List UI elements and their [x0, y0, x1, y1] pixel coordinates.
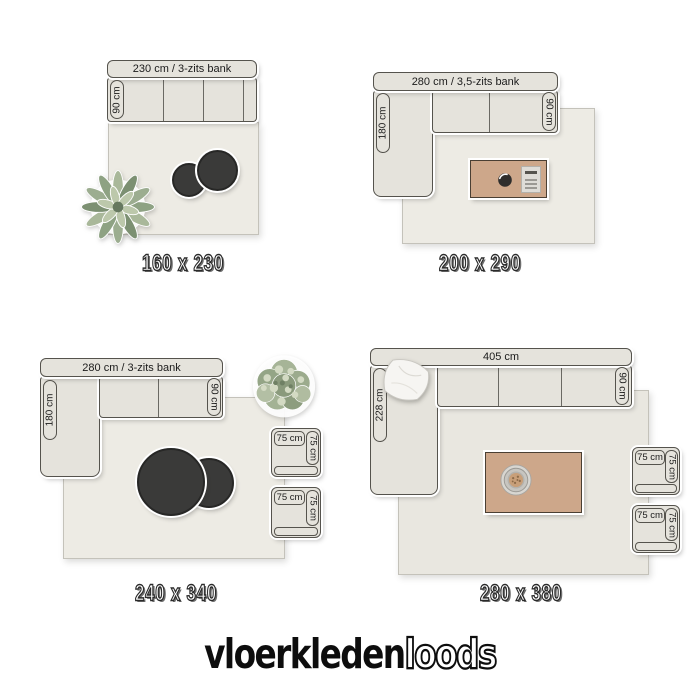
seat-divider: [203, 78, 204, 121]
magazine-line: [525, 187, 537, 189]
armchair-depth-pill: 75 cm: [306, 431, 319, 465]
sofa-depth-label: 90 cm: [112, 86, 123, 113]
armchair: 75 cm 75 cm: [632, 447, 680, 495]
armchair-depth-label: 75 cm: [666, 512, 677, 538]
sofa-width-label: 405 cm: [483, 351, 519, 363]
armchair: 75 cm 75 cm: [271, 428, 321, 477]
armchair-width-bar: 75 cm: [635, 450, 665, 465]
sofa-backrest-label: 280 cm / 3-zits bank: [40, 358, 223, 377]
armchair-width-bar: 75 cm: [635, 508, 665, 523]
round-coffee-table-icon: [137, 448, 205, 516]
rug-size-caption: 240 x 340: [112, 581, 240, 607]
seat-divider: [243, 78, 244, 121]
armchair: 75 cm 75 cm: [271, 487, 321, 538]
magazine-line: [525, 179, 537, 181]
armchair-width-label: 75 cm: [277, 492, 303, 503]
round-coffee-table-icon: [197, 150, 238, 191]
armchair-depth-pill: 75 cm: [306, 490, 319, 526]
magazine-icon: [521, 166, 541, 193]
magazine-line: [525, 183, 537, 185]
plate-icon: [500, 464, 532, 496]
armchair-width-label: 75 cm: [637, 452, 663, 463]
sofa-backrest-label: 230 cm / 3-zits bank: [107, 60, 257, 78]
armchair-width-bar: 75 cm: [274, 490, 305, 505]
sofa-depth-label: 90 cm: [544, 98, 555, 125]
brand-logo-outline: loods: [405, 630, 496, 678]
wooden-coffee-table-icon: [485, 452, 582, 513]
armchair-depth-label: 75 cm: [307, 495, 318, 521]
seat-divider: [498, 366, 499, 406]
seat-divider: [158, 377, 159, 417]
chaise-depth-label: 180 cm: [378, 107, 389, 140]
armchair-width-label: 75 cm: [637, 510, 663, 521]
chaise-depth-pill: 180 cm: [43, 380, 57, 440]
rug-size-guide: 230 cm / 3-zits bank 90 cm: [0, 0, 700, 700]
rug-size-caption: 160 x 230: [119, 251, 247, 277]
sofa-width-label: 230 cm / 3-zits bank: [133, 63, 231, 75]
rug-size-caption: 200 x 290: [416, 251, 544, 277]
bush-plant-icon: [242, 346, 326, 430]
sofa-depth-label: 90 cm: [617, 372, 628, 399]
sofa-depth-pill: 90 cm: [542, 92, 556, 131]
brand-logo: vloerkledenloods: [150, 630, 550, 678]
pillow-icon: [378, 354, 434, 406]
bowl-icon: [497, 172, 513, 188]
armchair-front-bar: [274, 466, 318, 475]
sofa-width-label: 280 cm / 3,5-zits bank: [412, 76, 520, 88]
rug-size-caption: 280 x 380: [457, 581, 585, 607]
armchair-front-bar: [274, 527, 318, 536]
armchair: 75 cm 75 cm: [632, 505, 680, 553]
sofa-width-label: 280 cm / 3-zits bank: [82, 362, 180, 374]
seat-divider: [163, 78, 164, 121]
sofa-depth-pill: 90 cm: [615, 367, 629, 405]
plant-icon: [80, 169, 156, 245]
sofa-seats: [107, 77, 257, 122]
armchair-width-bar: 75 cm: [274, 431, 305, 446]
armchair-depth-pill: 75 cm: [665, 450, 678, 483]
sofa-depth-label: 90 cm: [209, 383, 220, 410]
chaise-depth-label: 180 cm: [45, 394, 56, 427]
brand-logo-solid: vloerkleden: [204, 630, 404, 678]
sofa-seats: [437, 365, 632, 407]
chaise-depth-pill: 180 cm: [376, 93, 390, 153]
armchair-depth-label: 75 cm: [666, 454, 677, 480]
armchair-front-bar: [635, 484, 677, 493]
magazine-title: [525, 171, 537, 174]
sofa-backrest-label: 280 cm / 3,5-zits bank: [373, 72, 558, 91]
seat-divider: [489, 91, 490, 132]
armchair-depth-pill: 75 cm: [665, 508, 678, 541]
armchair-front-bar: [635, 542, 677, 551]
sofa-depth-pill: 90 cm: [110, 80, 124, 119]
wooden-coffee-table-icon: [470, 160, 547, 198]
sofa-depth-pill: 90 cm: [207, 378, 221, 416]
seat-divider: [561, 366, 562, 406]
armchair-width-label: 75 cm: [277, 433, 303, 444]
sofa-seats: [432, 90, 558, 133]
sofa-seats: [99, 376, 223, 418]
armchair-depth-label: 75 cm: [307, 435, 318, 461]
